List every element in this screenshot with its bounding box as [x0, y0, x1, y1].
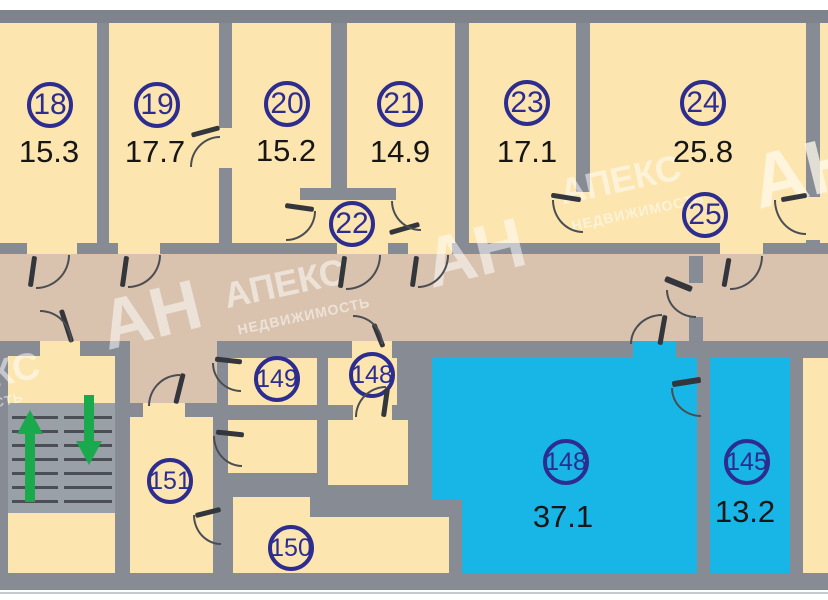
room-149-label: 149	[254, 356, 300, 402]
room-25-label: 25	[682, 192, 728, 238]
room-150-label: 150	[268, 525, 314, 571]
room-151-label: 151	[147, 458, 193, 504]
arrow-head	[17, 410, 43, 434]
wall	[689, 317, 703, 341]
room-23-label: 23	[504, 80, 550, 126]
room-148-label: 148	[543, 439, 589, 485]
room-22-label: 22	[329, 201, 375, 247]
door-opening	[408, 243, 452, 254]
room-20-label: 20	[264, 81, 310, 127]
room-24-area: 25.8	[648, 135, 758, 169]
room-24-label: 24	[680, 80, 726, 126]
room-floor-edge	[803, 358, 828, 573]
floor-plan: АН АПЕКС НЕДВИЖИМОСТЬ АН АПЕКС НЕДВИЖИМО…	[0, 0, 828, 600]
room-19-label: 19	[134, 82, 180, 128]
door-opening	[40, 341, 80, 357]
arrow-head	[76, 441, 102, 465]
door-opening	[27, 243, 77, 254]
room-floor	[328, 420, 408, 485]
wall	[300, 188, 396, 200]
room-145-label: 145	[724, 439, 770, 485]
divider	[0, 592, 828, 594]
room-150-floor-ext	[310, 517, 449, 573]
room-18-label: 18	[27, 82, 73, 128]
room-20-area: 15.2	[231, 134, 341, 168]
wall	[97, 23, 109, 243]
room-145-area: 13.2	[690, 495, 800, 529]
door-opening	[806, 197, 820, 240]
door-opening	[720, 243, 763, 254]
room-23-area: 17.1	[472, 135, 582, 169]
room-21-label: 21	[377, 81, 423, 127]
arrow-shaft	[25, 432, 35, 502]
arrow-shaft	[84, 395, 94, 443]
room-21-area: 14.9	[345, 135, 455, 169]
door-opening	[118, 243, 160, 254]
wall	[455, 23, 469, 243]
wall	[689, 256, 703, 283]
room-18-area: 15.3	[0, 135, 104, 169]
wall	[0, 10, 828, 23]
room-148-area: 37.1	[508, 500, 618, 534]
